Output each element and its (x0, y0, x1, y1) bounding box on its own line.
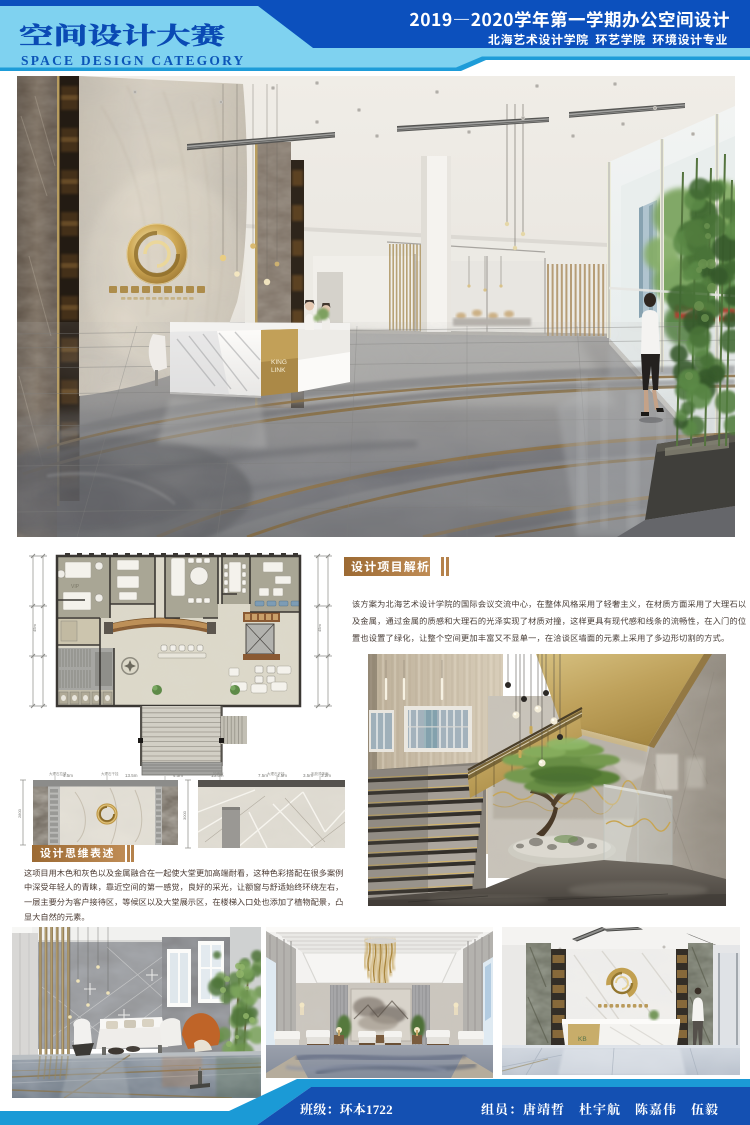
svg-text:45m: 45m (32, 624, 37, 632)
svg-text:护墙板: 护墙板 (213, 771, 224, 776)
svg-text:大理石拉缝: 大理石拉缝 (49, 771, 67, 776)
svg-text:45m: 45m (317, 624, 322, 632)
svg-text:3000: 3000 (182, 810, 187, 820)
svg-text:大理石干挂: 大理石干挂 (101, 771, 119, 776)
svg-text:KING: KING (271, 359, 287, 366)
svg-text:LINK: LINK (271, 367, 286, 374)
svg-text:2800: 2800 (17, 808, 22, 818)
svg-text:乳胶漆饰面: 乳胶漆饰面 (311, 771, 329, 776)
svg-text:VIP: VIP (71, 584, 80, 590)
svg-text:大理石干挂: 大理石干挂 (267, 771, 285, 776)
svg-text:KB: KB (578, 1036, 587, 1043)
